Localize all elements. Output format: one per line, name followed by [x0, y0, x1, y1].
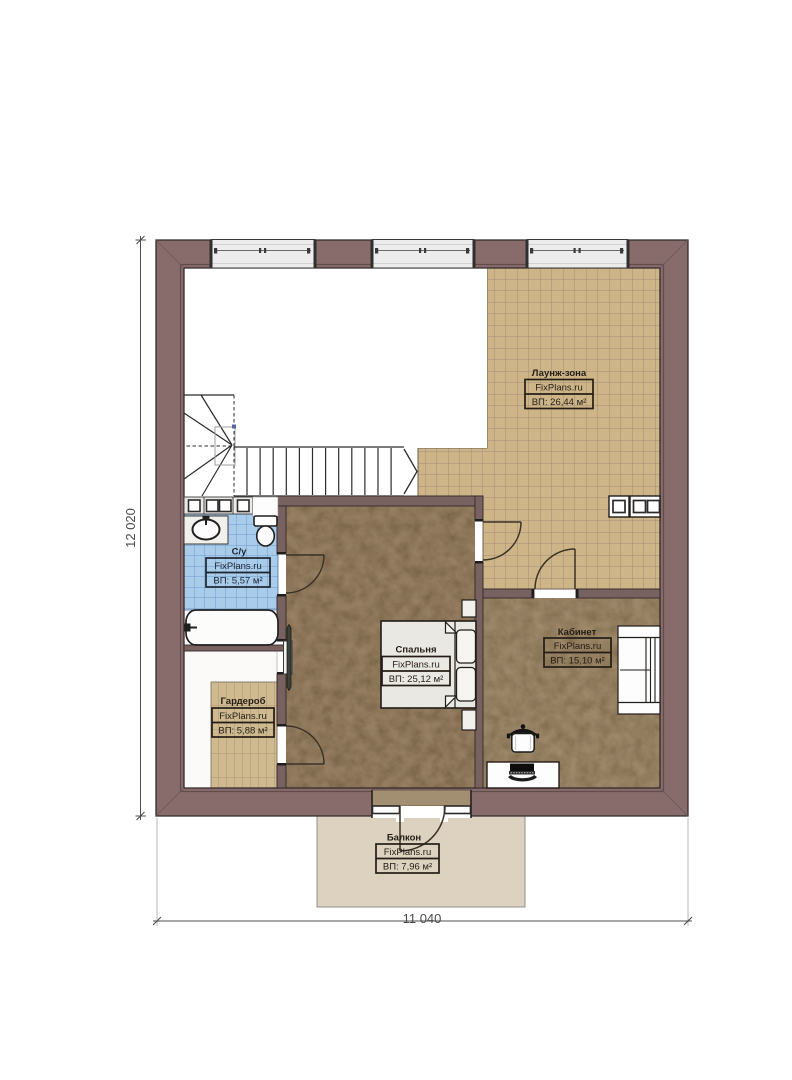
svg-text:Кабинет: Кабинет	[558, 627, 597, 638]
svg-text:Спальня: Спальня	[395, 645, 436, 656]
svg-text:FixPlans.ru: FixPlans.ru	[384, 847, 432, 858]
svg-text:Лаунж-зона: Лаунж-зона	[532, 368, 587, 379]
svg-text:FixPlans.ru: FixPlans.ru	[554, 641, 602, 652]
svg-text:12 020: 12 020	[123, 508, 138, 548]
svg-text:FixPlans.ru: FixPlans.ru	[392, 660, 440, 671]
svg-text:Балкон: Балкон	[387, 833, 422, 844]
svg-text:Гардероб: Гардероб	[221, 696, 266, 707]
svg-text:ВП: 5,57 м²: ВП: 5,57 м²	[213, 576, 262, 587]
svg-text:ВП: 26,44 м²: ВП: 26,44 м²	[532, 397, 587, 408]
svg-text:FixPlans.ru: FixPlans.ru	[214, 561, 262, 572]
svg-text:ВП: 7,96 м²: ВП: 7,96 м²	[383, 862, 432, 873]
svg-text:С/у: С/у	[232, 547, 248, 558]
svg-text:FixPlans.ru: FixPlans.ru	[219, 711, 267, 722]
svg-text:ВП: 25,12 м²: ВП: 25,12 м²	[389, 674, 444, 685]
svg-text:ВП: 15,10 м²: ВП: 15,10 м²	[550, 656, 605, 667]
svg-text:ВП: 5,88 м²: ВП: 5,88 м²	[218, 726, 267, 737]
svg-text:11 040: 11 040	[403, 911, 442, 926]
svg-text:FixPlans.ru: FixPlans.ru	[535, 383, 583, 394]
